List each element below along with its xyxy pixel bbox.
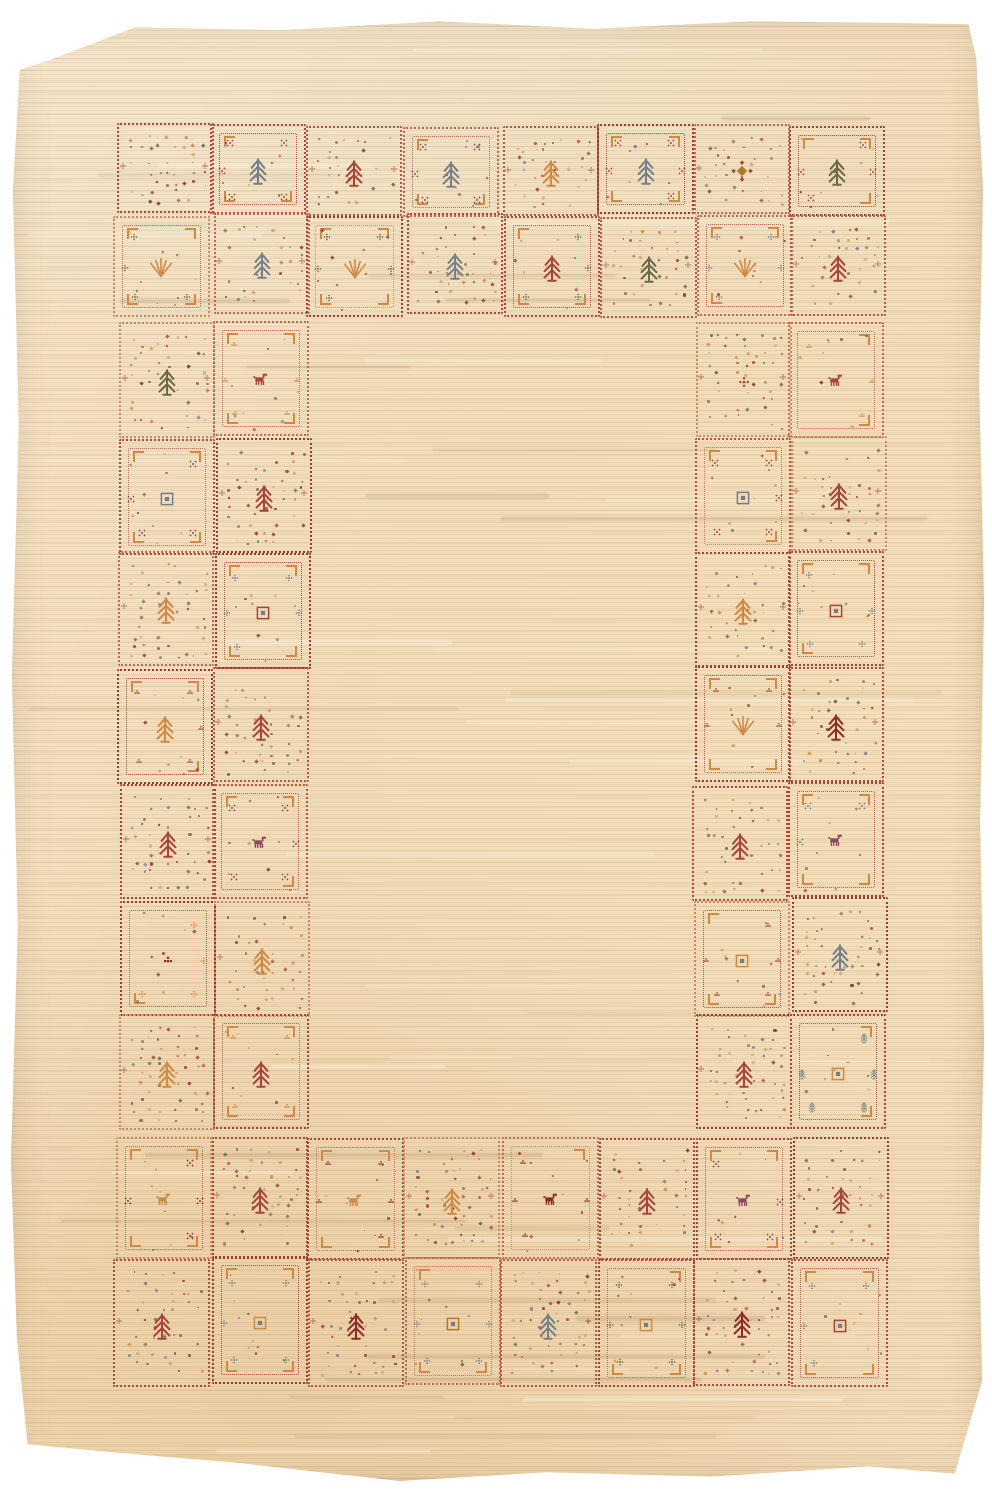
speckle-dot — [620, 1232, 622, 1234]
speckle-dot — [523, 271, 526, 274]
speckle-dot — [810, 245, 812, 247]
motif-cross — [585, 164, 596, 175]
speckle-dot — [256, 226, 258, 228]
motif-cross — [214, 256, 225, 267]
rug — [8, 14, 986, 1484]
motif-tree — [795, 1067, 808, 1080]
speckle-dot — [819, 759, 822, 762]
speckle-dot — [253, 300, 255, 302]
speckle-dot — [143, 1281, 148, 1286]
speckle-dot — [166, 161, 169, 164]
speckle-dot — [718, 610, 722, 614]
speckle-dot — [830, 981, 833, 984]
speckle-dot — [207, 859, 211, 863]
speckle-dot — [822, 982, 826, 986]
speckle-dot — [743, 1278, 746, 1281]
speckle-dot — [876, 973, 880, 977]
speckle-dot — [776, 1307, 779, 1310]
speckle-dot — [204, 626, 207, 629]
weave-streak — [455, 1416, 752, 1419]
motif-diamond — [727, 156, 757, 186]
motif-blocks — [762, 919, 775, 932]
motif-cross — [419, 1277, 432, 1290]
speckle-dot — [569, 204, 572, 207]
corner-bracket — [859, 874, 870, 885]
speckle-dot — [361, 149, 365, 153]
speckle-dot — [707, 400, 710, 403]
motif-cross — [119, 262, 132, 275]
rug-border-cell — [213, 321, 309, 436]
speckle-dot — [131, 1102, 134, 1105]
speckle-dot — [834, 700, 838, 704]
speckle-dot — [149, 146, 153, 150]
motif-cross — [280, 1354, 293, 1367]
speckle-dot — [751, 1370, 753, 1372]
speckle-dot — [157, 647, 160, 650]
speckle-dot — [194, 808, 196, 810]
speckle-dot — [846, 519, 850, 523]
speckle-dot — [515, 1280, 517, 1282]
speckle-dot — [249, 1149, 252, 1152]
rug-border-cell — [792, 897, 888, 1012]
speckle-dot — [328, 1300, 331, 1303]
speckle-dot — [176, 199, 181, 204]
speckle-dot — [726, 634, 730, 638]
motif-tree — [821, 251, 855, 285]
speckle-dot — [861, 965, 864, 968]
speckle-dot — [160, 1048, 163, 1051]
speckle-dot — [716, 1272, 718, 1274]
speckle-dot — [685, 1188, 687, 1190]
rug-border-cell — [307, 1138, 404, 1260]
motif-cross — [220, 607, 233, 620]
rug-border-cell — [694, 124, 791, 214]
speckle-dot — [817, 796, 819, 798]
speckle-dot — [330, 1325, 333, 1328]
speckle-dot — [620, 1223, 623, 1226]
speckle-dot — [132, 564, 135, 567]
speckle-dot — [776, 1362, 779, 1365]
speckle-dot — [289, 926, 293, 930]
speckle-dot — [143, 1342, 147, 1346]
weave-streak — [216, 1450, 432, 1452]
speckle-dot — [780, 203, 784, 207]
speckle-dot — [548, 1301, 552, 1305]
speckle-dot — [222, 1167, 225, 1170]
speckle-dot — [629, 239, 632, 242]
speckle-dot — [818, 538, 822, 542]
speckle-dot — [169, 1362, 173, 1366]
speckle-dot — [870, 927, 873, 930]
speckle-dot — [303, 453, 306, 456]
speckle-dot — [809, 770, 812, 773]
speckle-dot — [416, 1269, 418, 1271]
speckle-dot — [227, 516, 229, 518]
motif-cross — [775, 261, 788, 274]
speckle-dot — [815, 1225, 818, 1228]
speckle-dot — [704, 176, 706, 178]
speckle-dot — [768, 1362, 771, 1365]
corner-bracket — [859, 563, 870, 574]
speckle-dot — [389, 272, 391, 274]
speckle-dot — [548, 1345, 550, 1347]
speckle-dot — [227, 497, 230, 500]
speckle-dot — [640, 229, 644, 233]
speckle-dot — [846, 457, 849, 460]
motif-tree — [822, 479, 856, 513]
motif-cross — [129, 291, 142, 304]
speckle-dot — [717, 154, 720, 157]
speckle-dot — [717, 1218, 719, 1220]
speckle-dot — [418, 1150, 421, 1153]
motif-tree — [726, 594, 760, 628]
speckle-dot — [814, 478, 816, 480]
speckle-dot — [777, 1283, 780, 1286]
motif-xstar — [289, 837, 302, 850]
speckle-dot — [752, 1359, 756, 1363]
speckle-dot — [840, 1150, 842, 1152]
speckle-dot — [723, 1290, 725, 1292]
speckle-dot — [663, 1159, 666, 1162]
motif-cross — [778, 372, 789, 383]
speckle-dot — [861, 992, 863, 994]
rug-border-cell — [214, 901, 310, 1016]
speckle-dot — [712, 891, 715, 894]
speckle-dot — [856, 238, 858, 240]
speckle-dot — [611, 1233, 613, 1235]
speckle-dot — [415, 1207, 419, 1211]
speckle-dot — [259, 1223, 262, 1226]
speckle-dot — [150, 807, 153, 810]
speckle-dot — [760, 807, 763, 810]
speckle-dot — [807, 752, 811, 756]
motif-tree — [247, 481, 281, 515]
corner-bracket — [518, 228, 529, 239]
speckle-dot — [127, 1289, 130, 1292]
speckle-dot — [586, 1274, 590, 1278]
speckle-dot — [144, 870, 147, 873]
speckle-dot — [186, 593, 188, 595]
speckle-dot — [677, 250, 679, 252]
speckle-dot — [674, 1194, 678, 1198]
speckle-dot — [263, 923, 265, 925]
speckle-dot — [167, 805, 171, 809]
speckle-dot — [682, 1214, 685, 1217]
speckle-dot — [763, 1297, 765, 1299]
speckle-dot — [196, 871, 198, 873]
speckle-dot — [745, 645, 749, 649]
rug-border-cell — [695, 666, 791, 781]
speckle-dot — [195, 1108, 198, 1111]
speckle-dot — [328, 1365, 330, 1367]
rug-border-cell — [791, 1259, 888, 1387]
rug-border-cell — [502, 1137, 599, 1259]
motif-cross — [308, 1315, 319, 1326]
speckle-dot — [254, 759, 258, 763]
speckle-dot — [817, 885, 820, 888]
speckle-dot — [428, 1151, 430, 1153]
motif-xstar — [709, 456, 722, 469]
speckle-dot — [589, 141, 591, 143]
speckle-dot — [135, 861, 139, 865]
speckle-dot — [868, 614, 870, 616]
speckle-dot — [290, 282, 292, 284]
speckle-dot — [165, 472, 167, 474]
speckle-dot — [141, 146, 143, 148]
speckle-dot — [846, 697, 849, 700]
speckle-dot — [731, 809, 734, 812]
speckle-dot — [574, 1311, 578, 1315]
speckle-dot — [849, 1230, 853, 1234]
corner-bracket — [284, 333, 295, 344]
speckle-dot — [547, 1284, 550, 1287]
speckle-dot — [801, 512, 803, 514]
speckle-dot — [161, 427, 163, 429]
speckle-dot — [808, 1188, 811, 1191]
speckle-dot — [810, 206, 812, 208]
motif-xstar — [226, 802, 239, 815]
motif-tree — [534, 156, 568, 190]
speckle-dot — [735, 355, 739, 359]
motif-blocks — [701, 720, 714, 733]
motif-cross — [312, 262, 325, 275]
speckle-dot — [810, 709, 813, 712]
speckle-dot — [335, 191, 337, 193]
speckle-dot — [869, 493, 872, 496]
speckle-dot — [803, 689, 805, 691]
speckle-dot — [520, 1320, 523, 1323]
speckle-dot — [750, 809, 752, 811]
speckle-dot — [771, 424, 773, 426]
speckle-dot — [336, 1281, 339, 1284]
speckle-dot — [192, 162, 194, 164]
speckle-dot — [829, 680, 832, 683]
speckle-dot — [580, 166, 583, 169]
speckle-dot — [781, 427, 784, 430]
speckle-dot — [341, 1293, 344, 1296]
speckle-dot — [166, 184, 169, 187]
motif-blocks — [194, 723, 207, 736]
speckle-dot — [130, 364, 133, 367]
speckle-dot — [722, 162, 725, 165]
speckle-dot — [414, 1186, 416, 1188]
motif-tree — [819, 710, 853, 744]
motif-nsq — [251, 601, 275, 625]
speckle-dot — [320, 1373, 324, 1377]
speckle-dot — [877, 1150, 880, 1153]
speckle-dot — [713, 834, 717, 838]
speckle-dot — [292, 460, 295, 463]
speckle-dot — [271, 996, 275, 1000]
speckle-dot — [286, 770, 289, 773]
motif-cross — [120, 834, 131, 845]
speckle-dot — [806, 1178, 810, 1182]
speckle-dot — [135, 289, 137, 291]
speckle-dot — [137, 512, 139, 514]
speckle-dot — [715, 1369, 718, 1372]
speckle-dot — [715, 572, 718, 575]
speckle-dot — [174, 183, 177, 186]
motif-blocks — [710, 988, 723, 1001]
speckle-dot — [187, 870, 191, 874]
motif-tree — [149, 593, 183, 627]
speckle-dot — [618, 1197, 620, 1199]
motif-cross — [734, 372, 754, 392]
motif-xstar — [187, 457, 200, 470]
speckle-dot — [540, 1364, 544, 1368]
speckle-dot — [177, 336, 180, 339]
speckle-dot — [188, 833, 191, 836]
speckle-dot — [768, 469, 770, 471]
speckle-dot — [706, 585, 708, 587]
rug-border-cell — [119, 1014, 215, 1129]
speckle-dot — [249, 1158, 253, 1162]
speckle-dot — [226, 1222, 230, 1226]
rug-border-cell — [212, 784, 308, 899]
speckle-dot — [674, 292, 677, 295]
motif-cross — [229, 571, 242, 584]
speckle-dot — [805, 945, 808, 948]
speckle-dot — [244, 1238, 246, 1240]
speckle-dot — [444, 1169, 448, 1173]
speckle-dot — [862, 687, 864, 689]
motif-tree — [857, 1032, 870, 1045]
motif-tree — [531, 1309, 565, 1343]
speckle-dot — [149, 135, 152, 138]
speckle-dot — [587, 1290, 591, 1294]
speckle-dot — [763, 397, 766, 400]
motif-blocks — [866, 376, 879, 389]
speckle-dot — [178, 580, 182, 584]
speckle-dot — [393, 1275, 395, 1277]
speckle-dot — [244, 1176, 248, 1180]
motif-cross — [215, 951, 226, 962]
speckle-dot — [247, 1346, 250, 1349]
speckle-dot — [174, 1109, 177, 1112]
speckle-dot — [709, 416, 711, 418]
motif-tree — [145, 1309, 179, 1343]
speckle-dot — [821, 928, 823, 930]
speckle-dot — [830, 540, 832, 542]
speckle-dot — [567, 1302, 571, 1306]
speckle-dot — [365, 1345, 367, 1347]
speckle-dot — [685, 1169, 687, 1171]
speckle-dot — [227, 916, 229, 918]
speckle-dot — [373, 1301, 376, 1304]
motif-animal — [248, 368, 274, 394]
speckle-dot — [829, 476, 831, 478]
speckle-dot — [415, 1234, 417, 1236]
speckle-dot — [751, 137, 753, 139]
speckle-dot — [172, 1300, 175, 1303]
corner-bracket — [321, 1237, 332, 1248]
speckle-dot — [300, 953, 304, 957]
speckle-dot — [133, 645, 136, 648]
speckle-dot — [608, 137, 610, 139]
speckle-dot — [225, 698, 229, 702]
speckle-dot — [490, 1178, 492, 1180]
speckle-dot — [227, 245, 231, 249]
speckle-dot — [235, 689, 237, 691]
speckle-dot — [863, 751, 868, 756]
speckle-dot — [880, 1352, 883, 1355]
motif-fan — [728, 711, 758, 741]
speckle-dot — [171, 1292, 174, 1295]
motif-xstar — [805, 192, 818, 205]
speckle-dot — [383, 1281, 386, 1284]
motif-tree — [725, 1307, 759, 1341]
speckle-dot — [855, 247, 859, 251]
speckle-dot — [148, 1091, 150, 1093]
speckle-dot — [715, 164, 717, 166]
speckle-dot — [710, 626, 712, 628]
motif-cross — [119, 1064, 130, 1075]
speckle-dot — [136, 1361, 138, 1363]
speckle-dot — [188, 798, 190, 800]
motif-cross — [876, 1190, 887, 1201]
speckle-dot — [271, 229, 274, 232]
motif-cross — [696, 372, 707, 383]
speckle-dot — [131, 374, 133, 376]
speckle-dot — [840, 1221, 842, 1223]
motif-blocks — [227, 339, 240, 352]
motif-nsq — [824, 599, 848, 623]
speckle-dot — [265, 988, 268, 991]
corner-bracket — [185, 228, 196, 239]
speckle-dot — [194, 860, 196, 862]
speckle-dot — [735, 629, 737, 631]
speckle-dot — [134, 357, 137, 360]
speckle-dot — [168, 563, 171, 566]
speckle-dot — [762, 645, 765, 648]
speckle-dot — [873, 290, 877, 294]
speckle-dot — [710, 1070, 712, 1072]
speckle-dot — [779, 1116, 781, 1118]
speckle-dot — [705, 891, 707, 893]
speckle-dot — [156, 201, 160, 205]
speckle-dot — [863, 257, 867, 261]
rug-border-cell — [599, 1138, 696, 1260]
motif-cross — [213, 717, 224, 728]
speckle-dot — [224, 228, 228, 232]
motif-xstar — [183, 1156, 196, 1169]
speckle-dot — [299, 715, 304, 720]
speckle-dot — [774, 484, 777, 487]
speckle-dot — [856, 496, 858, 498]
motif-cross — [181, 291, 194, 304]
speckle-dot — [176, 861, 178, 863]
motif-xstar — [675, 164, 688, 177]
speckle-dot — [754, 1273, 756, 1275]
motif-tree — [434, 157, 468, 191]
speckle-dot — [523, 161, 526, 164]
speckle-dot — [158, 1119, 160, 1121]
speckle-dot — [435, 291, 438, 294]
speckle-dot — [581, 157, 583, 159]
motif-cross — [228, 1354, 241, 1367]
speckle-dot — [770, 157, 773, 160]
speckle-dot — [392, 183, 396, 187]
motif-blocks — [313, 1195, 326, 1208]
speckle-dot — [300, 480, 303, 483]
motif-cross — [486, 1190, 497, 1201]
speckle-dot — [558, 1290, 562, 1294]
speckle-dot — [551, 1361, 553, 1363]
speckle-dot — [286, 754, 288, 756]
motif-blocks — [280, 1032, 293, 1045]
speckle-dot — [771, 869, 773, 871]
speckle-dot — [763, 362, 765, 364]
